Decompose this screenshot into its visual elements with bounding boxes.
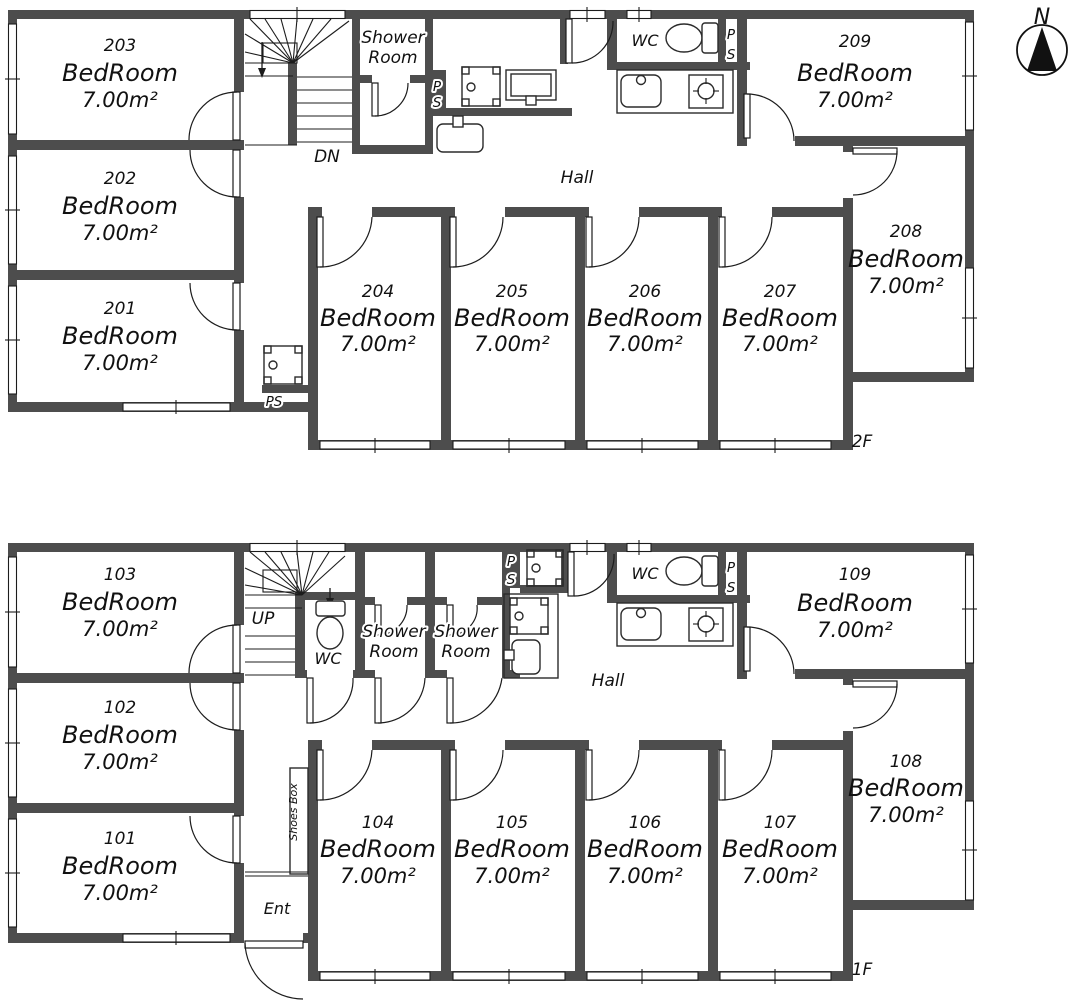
- stair-label-up: UP: [252, 609, 275, 629]
- door-room-108: [853, 681, 897, 728]
- room-number: 205: [496, 282, 528, 302]
- room-area: 7.00m²: [607, 864, 683, 888]
- room-area: 7.00m²: [82, 881, 158, 905]
- room-name: BedRoom: [848, 774, 964, 802]
- window: [962, 801, 977, 900]
- room-area: 7.00m²: [817, 88, 893, 112]
- toilet-icon: [316, 601, 345, 649]
- room-name: BedRoom: [62, 59, 178, 87]
- room-area: 7.00m²: [742, 332, 818, 356]
- room-number: 104: [362, 813, 394, 833]
- ps-label: S: [507, 572, 516, 588]
- stove-icon: [689, 75, 723, 108]
- door-room-208: [853, 148, 897, 195]
- door-room-201: [190, 283, 240, 330]
- window: [5, 24, 20, 134]
- room-name: BedRoom: [320, 304, 436, 332]
- shower-room-label: Shower: [361, 28, 425, 48]
- door-room-203: [189, 92, 240, 140]
- ps-label: P: [433, 79, 442, 95]
- labels-1f: 103 BedRoom 7.00m² 102 BedRoom 7.00m² 10…: [62, 554, 964, 980]
- room-number: 108: [890, 752, 923, 772]
- washing-machine-icon: [527, 550, 563, 586]
- door-room-101: [190, 816, 240, 863]
- room-name: BedRoom: [797, 589, 913, 617]
- floor-label-2f: 2F: [852, 432, 873, 452]
- ps-label: S: [727, 47, 736, 63]
- room-area: 7.00m²: [474, 864, 550, 888]
- floor-plan-2f: 203 BedRoom 7.00m² 202 BedRoom 7.00m² 20…: [5, 7, 977, 453]
- floor-plan-page: 203 BedRoom 7.00m² 202 BedRoom 7.00m² 20…: [0, 0, 1074, 1000]
- window: [627, 540, 651, 555]
- washbasin-icon: [504, 594, 558, 678]
- room-number: 203: [104, 36, 136, 56]
- door-shower-room-2: [447, 678, 502, 723]
- room-area: 7.00m²: [82, 351, 158, 375]
- door-room-209: [744, 94, 794, 141]
- staircase-2f-down: [245, 19, 352, 145]
- compass-needle-icon: [1027, 27, 1057, 71]
- room-number: 101: [104, 829, 136, 849]
- window: [962, 555, 977, 663]
- door-room-102: [190, 683, 240, 730]
- window: [570, 7, 605, 22]
- wc-label: WC: [632, 31, 660, 50]
- room-area: 7.00m²: [82, 617, 158, 641]
- room-number: 105: [496, 813, 528, 833]
- room-area: 7.00m²: [82, 221, 158, 245]
- room-name: BedRoom: [587, 304, 703, 332]
- entrance-label: Ent: [264, 899, 291, 918]
- door-room-105: [450, 750, 503, 800]
- window: [5, 819, 20, 927]
- ps-label: P: [727, 27, 736, 43]
- toilet-icon: [666, 23, 718, 53]
- room-name: BedRoom: [62, 852, 178, 880]
- room-number: 106: [629, 813, 662, 833]
- room-area: 7.00m²: [82, 88, 158, 112]
- room-name: BedRoom: [62, 322, 178, 350]
- door-room-107: [719, 750, 772, 800]
- room-area: 7.00m²: [82, 750, 158, 774]
- floor-plan-drawing: 203 BedRoom 7.00m² 202 BedRoom 7.00m² 20…: [0, 0, 1074, 1000]
- window: [570, 540, 605, 555]
- room-area: 7.00m²: [817, 618, 893, 642]
- kitchen-sink-icon: [621, 608, 661, 640]
- labels-2f: 203 BedRoom 7.00m² 202 BedRoom 7.00m² 20…: [62, 27, 964, 452]
- stair-label-dn: DN: [314, 147, 340, 167]
- room-number: 207: [764, 282, 797, 302]
- room-name: BedRoom: [62, 588, 178, 616]
- hall-label: Hall: [561, 168, 594, 188]
- room-name: BedRoom: [848, 245, 964, 273]
- door-room-104: [317, 750, 372, 800]
- room-number: 102: [104, 698, 136, 718]
- hall-label: Hall: [592, 671, 625, 691]
- shower-room-label: Room: [441, 642, 490, 662]
- door-room-206: [586, 217, 639, 267]
- room-number: 204: [362, 282, 394, 302]
- ps-label: P: [727, 560, 736, 576]
- door-shower-room-2f: [372, 83, 408, 116]
- room-number: 109: [839, 565, 871, 585]
- stove-icon: [689, 608, 723, 641]
- ps-label: S: [727, 580, 736, 596]
- room-name: BedRoom: [62, 192, 178, 220]
- compass: N: [1017, 5, 1067, 75]
- room-name: BedRoom: [454, 304, 570, 332]
- room-area: 7.00m²: [474, 332, 550, 356]
- room-name: BedRoom: [320, 835, 436, 863]
- room-name: BedRoom: [722, 304, 838, 332]
- shower-room-label: Room: [369, 642, 418, 662]
- kitchen-sink-icon: [621, 75, 661, 107]
- shoes-box-label: Shoes Box: [287, 783, 300, 841]
- room-area: 7.00m²: [607, 332, 683, 356]
- room-number: 202: [104, 169, 136, 189]
- room-number: 107: [764, 813, 797, 833]
- wc-label: WC: [632, 564, 660, 583]
- ps-label: S: [433, 95, 442, 111]
- room-name: BedRoom: [587, 835, 703, 863]
- window: [962, 268, 977, 368]
- shower-room-label: Shower: [434, 622, 498, 642]
- room-number: 201: [104, 299, 136, 319]
- door-shower-room-1: [375, 678, 425, 723]
- room-name: BedRoom: [454, 835, 570, 863]
- room-number: 103: [104, 565, 136, 585]
- window: [5, 689, 20, 797]
- window: [5, 156, 20, 264]
- floor-label-1f: 1F: [852, 960, 873, 980]
- wc-label: WC: [315, 649, 343, 668]
- room-area: 7.00m²: [742, 864, 818, 888]
- window: [5, 557, 20, 667]
- room-number: 206: [629, 282, 662, 302]
- room-area: 7.00m²: [868, 803, 944, 827]
- shower-room-label: Room: [368, 48, 417, 68]
- door-room-109: [744, 627, 794, 674]
- window: [5, 286, 20, 394]
- shower-room-label: Shower: [362, 622, 426, 642]
- room-name: BedRoom: [797, 59, 913, 87]
- door-wc-2f: [566, 19, 613, 63]
- room-number: 208: [890, 222, 923, 242]
- entrance-door: [245, 941, 303, 999]
- washing-machine-icon: [510, 598, 548, 634]
- window: [962, 22, 977, 130]
- door-room-207: [719, 217, 772, 267]
- washing-machine-icon: [462, 67, 500, 106]
- door-room-205: [450, 217, 503, 267]
- door-room-202: [190, 150, 240, 197]
- room-number: 209: [839, 32, 871, 52]
- washbasin-icon: [437, 116, 483, 152]
- ps-label: P: [507, 554, 516, 570]
- room-area: 7.00m²: [340, 332, 416, 356]
- ps-label: PS: [266, 394, 283, 410]
- door-room-103: [189, 625, 240, 673]
- door-room-204: [317, 217, 372, 267]
- toilet-icon: [666, 556, 718, 586]
- room-area: 7.00m²: [340, 864, 416, 888]
- door-wc-stairs-1f: [307, 678, 353, 723]
- room-area: 7.00m²: [868, 274, 944, 298]
- floor-plan-1f: 103 BedRoom 7.00m² 102 BedRoom 7.00m² 10…: [5, 540, 977, 999]
- washing-machine-icon: [264, 346, 302, 384]
- window: [627, 7, 651, 22]
- room-name: BedRoom: [722, 835, 838, 863]
- laundry-counter-icon: [506, 70, 556, 105]
- door-room-106: [586, 750, 639, 800]
- room-name: BedRoom: [62, 721, 178, 749]
